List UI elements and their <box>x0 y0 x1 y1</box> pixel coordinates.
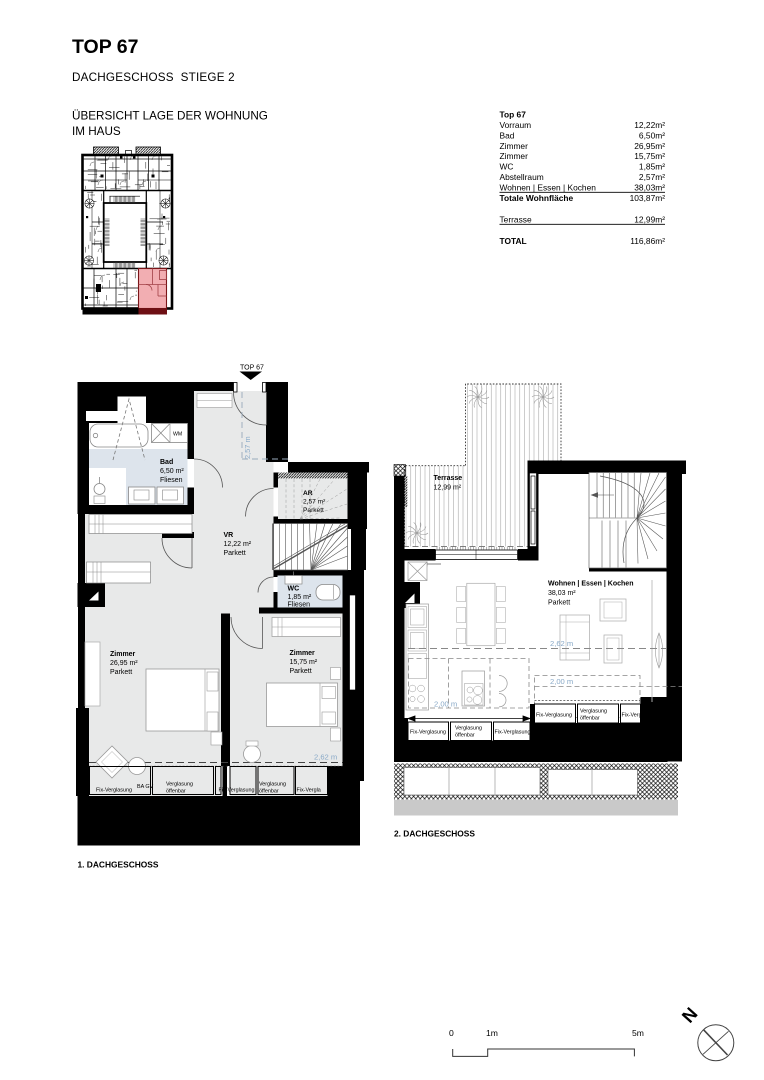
svg-text:TOP 67: TOP 67 <box>72 36 139 58</box>
svg-text:Top 67: Top 67 <box>500 109 527 119</box>
svg-text:2,57 m: 2,57 m <box>243 436 252 459</box>
svg-text:öffenbar: öffenbar <box>580 716 600 722</box>
svg-text:116,86m²: 116,86m² <box>630 236 665 246</box>
svg-text:BA GV: BA GV <box>137 784 154 790</box>
svg-text:öffenbar: öffenbar <box>166 789 186 795</box>
svg-text:IM HAUS: IM HAUS <box>72 125 121 138</box>
svg-text:TOP 67: TOP 67 <box>240 365 264 372</box>
svg-text:2. DACHGESCHOSS: 2. DACHGESCHOSS <box>394 829 475 839</box>
svg-text:2,00 m: 2,00 m <box>550 677 573 686</box>
svg-text:Terrasse: Terrasse <box>500 214 532 224</box>
svg-text:Fix-Verglasung: Fix-Verglasung <box>96 788 132 794</box>
svg-text:15,75m²: 15,75m² <box>634 151 665 161</box>
svg-text:DACHGESCHOSS STIEGE 2: DACHGESCHOSS STIEGE 2 <box>72 71 235 84</box>
svg-text:1,85 m²: 1,85 m² <box>288 594 312 601</box>
svg-text:Bad: Bad <box>160 459 173 466</box>
svg-text:Verglasung: Verglasung <box>259 782 286 788</box>
svg-text:Zimmer: Zimmer <box>290 650 316 657</box>
svg-text:2,62 m: 2,62 m <box>314 753 337 762</box>
svg-text:Verglasung: Verglasung <box>455 726 482 732</box>
svg-text:Fix-Verglasung: Fix-Verglasung <box>219 788 255 794</box>
svg-text:Fix-Verglasung: Fix-Verglasung <box>495 730 531 736</box>
svg-text:TOTAL: TOTAL <box>500 236 527 246</box>
svg-text:2,00 m: 2,00 m <box>434 700 457 709</box>
svg-text:öffenbar: öffenbar <box>455 733 475 739</box>
svg-text:12,99m²: 12,99m² <box>634 214 665 224</box>
svg-text:Fix-Vergla: Fix-Vergla <box>297 788 321 794</box>
svg-text:38,03 m²: 38,03 m² <box>548 590 576 597</box>
svg-text:WC: WC <box>288 586 300 593</box>
svg-text:38,03m²: 38,03m² <box>634 182 665 192</box>
svg-text:Terrasse: Terrasse <box>434 475 463 482</box>
svg-text:Zimmer: Zimmer <box>110 651 136 658</box>
svg-text:Parkett: Parkett <box>290 668 312 675</box>
svg-text:26,95m²: 26,95m² <box>634 141 665 151</box>
svg-text:26,95 m²: 26,95 m² <box>110 660 138 667</box>
svg-text:Abstellraum: Abstellraum <box>500 172 544 182</box>
svg-text:N: N <box>678 1004 702 1027</box>
svg-text:Parkett: Parkett <box>110 669 132 676</box>
svg-text:Wohnen | Essen | Kochen: Wohnen | Essen | Kochen <box>548 581 633 588</box>
svg-text:Parkett: Parkett <box>548 600 570 607</box>
svg-text:6,50 m²: 6,50 m² <box>160 468 184 475</box>
svg-text:Verglasung: Verglasung <box>580 709 607 715</box>
svg-text:Parkett: Parkett <box>303 507 324 514</box>
svg-text:6,50m²: 6,50m² <box>639 130 665 140</box>
svg-text:5m: 5m <box>632 1028 644 1038</box>
svg-text:VR: VR <box>224 532 234 539</box>
svg-text:WM: WM <box>173 432 182 438</box>
svg-text:WC: WC <box>500 162 514 172</box>
svg-text:Totale Wohnfläche: Totale Wohnfläche <box>500 193 574 203</box>
svg-text:2,62 m: 2,62 m <box>550 639 573 648</box>
svg-text:2,57m²: 2,57m² <box>639 172 665 182</box>
svg-text:12,22 m²: 12,22 m² <box>224 541 252 548</box>
svg-text:Parkett: Parkett <box>224 550 246 557</box>
svg-text:Wohnen | Essen | Kochen: Wohnen | Essen | Kochen <box>500 182 597 192</box>
svg-text:Verglasung: Verglasung <box>166 782 193 788</box>
svg-text:2,57 m²: 2,57 m² <box>303 499 326 506</box>
svg-text:103,87m²: 103,87m² <box>630 193 666 203</box>
svg-text:Zimmer: Zimmer <box>500 141 529 151</box>
svg-text:1,85m²: 1,85m² <box>639 162 665 172</box>
svg-text:12,99 m²: 12,99 m² <box>434 485 462 492</box>
svg-text:Fix-Vergl: Fix-Vergl <box>622 713 643 719</box>
svg-text:15,75 m²: 15,75 m² <box>290 659 318 666</box>
svg-text:1. DACHGESCHOSS: 1. DACHGESCHOSS <box>78 860 159 870</box>
svg-text:Bad: Bad <box>500 130 515 140</box>
svg-text:Fliesen: Fliesen <box>160 477 183 484</box>
svg-text:Fix-Verglasung: Fix-Verglasung <box>536 713 572 719</box>
svg-text:Fliesen: Fliesen <box>288 602 311 609</box>
svg-text:Fix-Verglasung: Fix-Verglasung <box>410 730 446 736</box>
svg-text:Vorraum: Vorraum <box>500 120 532 130</box>
svg-text:ÜBERSICHT LAGE DER WOHNUNG: ÜBERSICHT LAGE DER WOHNUNG <box>72 110 268 123</box>
svg-text:öffenbar: öffenbar <box>259 789 279 795</box>
svg-text:1m: 1m <box>486 1028 498 1038</box>
svg-text:0: 0 <box>449 1028 454 1038</box>
svg-text:Zimmer: Zimmer <box>500 151 529 161</box>
svg-text:12,22m²: 12,22m² <box>634 120 665 130</box>
svg-text:AR: AR <box>303 490 313 497</box>
